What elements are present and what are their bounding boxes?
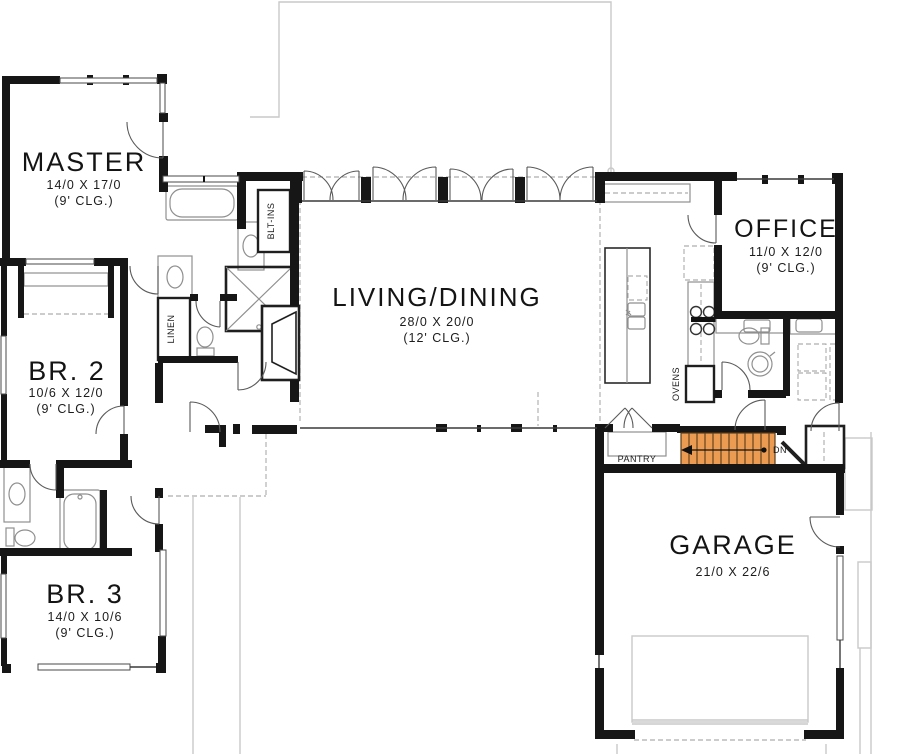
floor-plan: MASTER 14/0 X 17/0 (9' CLG.) BR. 2 10/6 … — [0, 0, 900, 754]
kitchen-island — [605, 248, 650, 383]
room-label-garage: GARAGE — [669, 530, 797, 560]
room-label-living: LIVING/DINING — [332, 282, 541, 312]
floor-plan-drawing: MASTER 14/0 X 17/0 (9' CLG.) BR. 2 10/6 … — [0, 0, 900, 754]
room-dims-office: 11/0 X 12/0 — [749, 245, 823, 259]
label-stairs-dn: DN — [773, 445, 787, 455]
dryer-icon — [798, 373, 826, 400]
side-stoop — [845, 438, 872, 510]
master-bathtub-icon — [166, 186, 238, 220]
room-dims-br3: 14/0 X 10/6 — [48, 610, 123, 624]
stair-top-wall — [677, 426, 777, 433]
room-clg-br2: (9' CLG.) — [36, 402, 95, 416]
br2-closet-shelf — [24, 273, 108, 286]
cooktop-icon — [691, 307, 717, 335]
label-linen: LINEN — [166, 314, 176, 343]
label-ovens: OVENS — [671, 367, 681, 401]
patio-outline — [250, 2, 611, 174]
fixtures — [4, 184, 844, 554]
room-dims-br2: 10/6 X 12/0 — [29, 386, 104, 400]
refrigerator-icon — [684, 246, 714, 280]
ovens-cabinet — [686, 366, 714, 402]
washer-icon — [798, 344, 826, 371]
dishwasher-icon — [628, 276, 647, 300]
bathtub-icon-hallbath — [60, 490, 100, 554]
sink-icon-2 — [167, 266, 183, 288]
vanity-counter-3 — [4, 466, 30, 522]
island-sink-basin2 — [628, 317, 645, 329]
laundry-sink — [796, 319, 822, 332]
room-label-br2: BR. 2 — [28, 356, 106, 386]
stair-line-dot — [761, 447, 766, 452]
pedestal-sink-icon — [748, 352, 775, 376]
room-label-office: OFFICE — [734, 215, 838, 243]
room-dims-living: 28/0 X 20/0 — [400, 315, 475, 329]
powder-counter-sink — [744, 320, 770, 332]
room-clg-br3: (9' CLG.) — [55, 626, 114, 640]
staircase — [677, 426, 777, 466]
vanity-counter-2 — [158, 256, 192, 298]
label-pantry: PANTRY — [618, 454, 657, 464]
toilet-icon-master — [197, 327, 214, 356]
room-clg-living: (12' CLG.) — [403, 331, 470, 345]
front-walkway — [193, 497, 240, 754]
room-clg-office: (9' CLG.) — [756, 261, 815, 275]
side-pad — [858, 562, 871, 648]
fireplace — [262, 306, 299, 380]
toilet-icon-hallbath — [6, 528, 35, 546]
room-label-br3: BR. 3 — [46, 579, 124, 609]
entry-overhang-dash — [168, 434, 266, 496]
sink-icon — [243, 235, 259, 257]
room-label-master: MASTER — [22, 147, 147, 177]
sink-icon-3 — [9, 483, 25, 505]
room-dims-garage: 21/0 X 22/6 — [696, 565, 771, 579]
room-dims-master: 14/0 X 17/0 — [47, 178, 122, 192]
coat-closet — [782, 426, 844, 468]
label-blt-ins: BLT-INS — [266, 203, 276, 240]
driveway-lines — [617, 432, 871, 754]
garage-door-panel — [632, 636, 808, 722]
room-clg-master: (9' CLG.) — [54, 194, 113, 208]
pantry-shelf — [608, 432, 666, 456]
